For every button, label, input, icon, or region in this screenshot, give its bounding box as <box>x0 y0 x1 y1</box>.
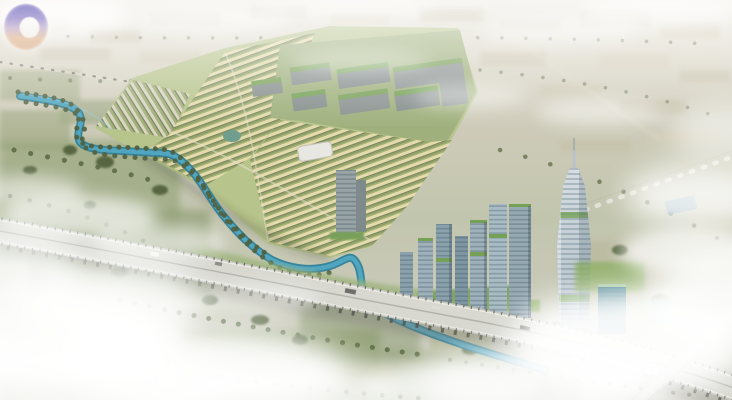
aerial-render-canvas <box>0 0 732 400</box>
pond <box>223 130 241 142</box>
atmospheric-haze <box>0 0 732 130</box>
ring-logo-icon <box>0 1 52 53</box>
render-image <box>0 0 732 400</box>
